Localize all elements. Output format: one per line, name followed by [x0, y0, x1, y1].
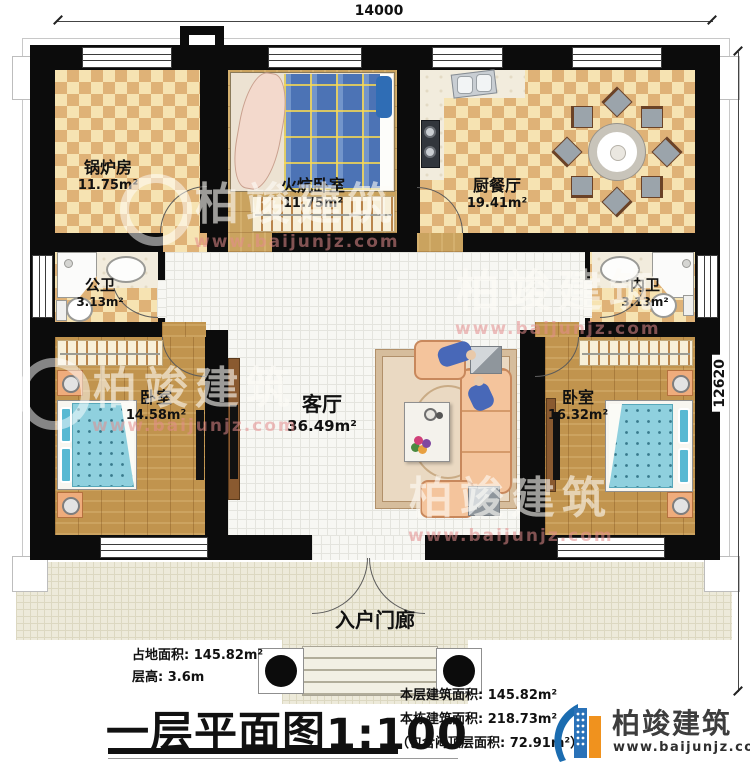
- brand-site: www.baijunjz.com: [613, 740, 750, 755]
- door-threshold-kitchen: [417, 233, 463, 252]
- pillow: [60, 447, 72, 483]
- corner-pilaster: [704, 556, 740, 592]
- window: [82, 47, 172, 68]
- room-area: 11.75m²: [283, 196, 343, 212]
- room-area: 14.58m²: [126, 408, 186, 424]
- sofa-armchair-bottom: [420, 480, 474, 518]
- room-label-boiler: 锅炉房 11.75m²: [48, 158, 168, 194]
- tv-living: [230, 405, 238, 479]
- porch-column: [443, 655, 475, 687]
- dimension-height-label: 12620: [712, 355, 728, 412]
- door-threshold-bedroom-right: [535, 322, 579, 337]
- shower-drain: [64, 259, 73, 268]
- building-area-text: 本栋建筑面积: 218.73m²: [400, 708, 557, 727]
- kang-quilt-plaid: [284, 74, 380, 190]
- room-name: 卧室: [562, 388, 594, 408]
- hallway-floor: [165, 252, 585, 330]
- closet-right-bedroom: [579, 340, 693, 366]
- room-name: 厨餐厅: [473, 176, 521, 196]
- room-label-porch: 入户门廊: [305, 604, 445, 633]
- dimension-tick: [53, 15, 63, 25]
- site-area-text: 占地面积: 145.82m²: [132, 644, 263, 663]
- person-head: [474, 376, 484, 386]
- window: [32, 255, 53, 318]
- window: [100, 537, 208, 558]
- room-area: 11.75m²: [78, 178, 138, 194]
- dining-chair: [571, 106, 593, 128]
- side-table: [470, 346, 502, 374]
- person-head: [466, 350, 476, 360]
- this-floor-area-text: 本层建筑面积: 145.82m²: [400, 684, 557, 703]
- room-label-bedroom-left: 卧室 14.58m²: [106, 388, 206, 424]
- entry-door-opening: [312, 535, 425, 560]
- dimension-height-line: [738, 52, 739, 692]
- nightstand: [57, 370, 83, 396]
- flower-decor: [414, 436, 423, 445]
- shower-drain: [682, 259, 691, 268]
- room-area: 36.49m²: [287, 417, 357, 436]
- room-label-kitchen: 厨餐厅 19.41m²: [437, 176, 557, 212]
- sink-basin: [457, 76, 473, 94]
- brand-name: 柏竣建筑: [612, 702, 732, 742]
- nightstand: [667, 370, 693, 396]
- room-label-ensuite-bath: 内卫 3.13m²: [600, 276, 690, 310]
- stove-burner: [424, 126, 436, 138]
- door-threshold-boiler: [163, 233, 207, 252]
- porch-column: [265, 655, 297, 687]
- pillow: [678, 448, 690, 484]
- dimension-width-line: [57, 21, 713, 22]
- window: [268, 47, 362, 68]
- kang-pillow: [376, 76, 392, 118]
- cup: [436, 412, 443, 419]
- room-name: 公卫: [85, 276, 115, 295]
- room-label-living: 客厅 36.49m²: [262, 392, 382, 436]
- sink-basin: [476, 74, 492, 92]
- room-name: 卧室: [140, 388, 172, 408]
- nightstand: [57, 492, 83, 518]
- door-opening-ensuite-bath: [583, 280, 592, 318]
- dining-table-center: [610, 145, 626, 161]
- window: [557, 537, 665, 558]
- side-table: [468, 486, 500, 516]
- floor-plan-sheet: 14000 12620: [0, 0, 750, 773]
- brand-logo-icon: [548, 698, 606, 764]
- pillow: [678, 408, 690, 444]
- title-underline-thick: [108, 748, 398, 754]
- room-name: 内卫: [630, 276, 660, 295]
- corner-pilaster: [12, 556, 48, 592]
- dining-chair: [641, 176, 663, 198]
- pillow: [60, 407, 72, 443]
- floor-height-text: 层高: 3.6m: [132, 666, 204, 685]
- room-label-public-bath: 公卫 3.13m²: [55, 276, 145, 310]
- door-threshold-bedroom-left: [162, 322, 206, 337]
- room-area: 3.13m²: [76, 295, 123, 310]
- window: [572, 47, 662, 68]
- stove-burner: [424, 146, 436, 158]
- room-area: 19.41m²: [467, 196, 527, 212]
- dining-chair: [571, 176, 593, 198]
- dimension-tick: [707, 15, 717, 25]
- window: [432, 47, 503, 68]
- room-name: 客厅: [302, 392, 342, 417]
- room-area: 16.32m²: [548, 408, 608, 424]
- window: [697, 255, 718, 318]
- room-label-bedroom-right: 卧室 16.32m²: [528, 388, 628, 424]
- room-label-kang-bedroom: 火炕卧室 11.75m²: [243, 176, 383, 212]
- title-underline-thin: [108, 758, 458, 759]
- nightstand: [667, 492, 693, 518]
- door-threshold-kang: [228, 233, 272, 252]
- closet-left-bedroom: [57, 340, 163, 366]
- room-area: 3.13m²: [621, 295, 668, 310]
- room-name: 火炕卧室: [281, 176, 345, 196]
- door-opening-public-bath: [157, 280, 167, 318]
- dimension-width-label: 14000: [340, 3, 418, 19]
- room-name: 锅炉房: [84, 158, 132, 178]
- dining-chair: [641, 106, 663, 128]
